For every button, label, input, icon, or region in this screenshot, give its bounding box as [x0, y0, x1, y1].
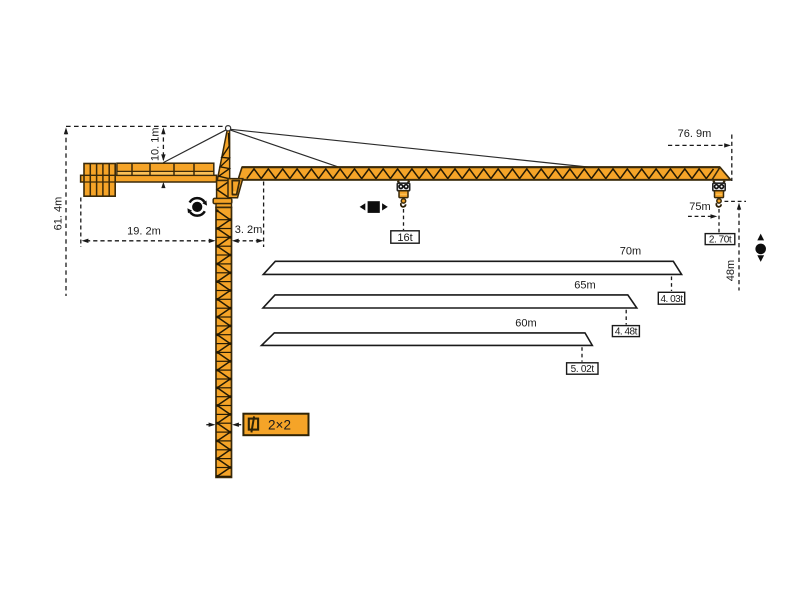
svg-text:65m: 65m [574, 279, 595, 291]
svg-text:2×2: 2×2 [268, 417, 291, 432]
svg-text:2. 70t: 2. 70t [709, 235, 732, 246]
svg-text:75m: 75m [689, 201, 710, 213]
svg-text:76. 9m: 76. 9m [678, 128, 712, 140]
svg-text:16t: 16t [397, 232, 412, 244]
svg-text:61. 4m: 61. 4m [52, 197, 64, 231]
svg-text:3. 2m: 3. 2m [235, 224, 263, 236]
svg-text:10. 1m: 10. 1m [149, 127, 161, 161]
svg-text:5. 02t: 5. 02t [571, 364, 595, 375]
svg-text:4. 48t: 4. 48t [615, 327, 638, 338]
svg-text:60m: 60m [515, 317, 536, 329]
svg-text:4. 03t: 4. 03t [660, 294, 683, 305]
svg-text:70m: 70m [620, 246, 641, 258]
svg-text:19. 2m: 19. 2m [127, 226, 161, 238]
svg-text:48m: 48m [725, 260, 737, 281]
